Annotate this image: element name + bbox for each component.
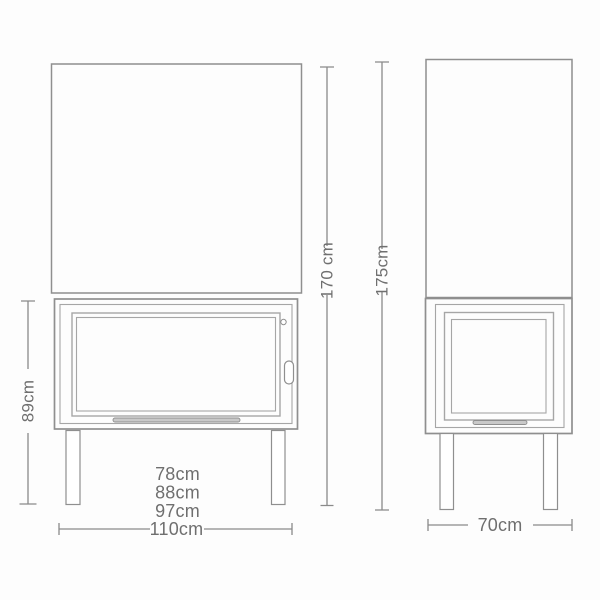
front-door-frame [72, 313, 280, 416]
front-right-leg [272, 431, 286, 505]
width-variant-2-label: 88cm [155, 483, 200, 503]
door-handle [285, 361, 294, 384]
firebox-height-label: 89cm [19, 380, 38, 422]
side-door-frame [445, 313, 554, 421]
side-air-vent [473, 421, 527, 425]
height-front-label: 170 cm [318, 242, 337, 299]
side-inner-frames [436, 305, 565, 428]
front-inner-frames [60, 305, 292, 424]
front-firebox-outer-frame [55, 299, 298, 429]
front-air-vent [113, 418, 240, 422]
side-glass-pane [452, 320, 547, 414]
front-flue-body [52, 64, 302, 293]
width-variant-1-label: 78cm [155, 464, 200, 484]
side-flue-body [426, 60, 572, 298]
diagram-canvas: 78cm 88cm 97cm 110cm 70cm 89cm 170 cm 17… [0, 0, 600, 600]
height-total-label: 175cm [373, 244, 392, 296]
side-view [426, 60, 573, 510]
fireplace-dimension-drawing: 78cm 88cm 97cm 110cm 70cm 89cm 170 cm 17… [0, 0, 600, 600]
width-variant-3-label: 97cm [155, 501, 200, 521]
front-glass-pane [77, 318, 276, 412]
side-front-leg [440, 434, 454, 510]
side-rear-leg [544, 434, 558, 510]
front-firebox-mid-frame [60, 305, 292, 424]
overall-width-label: 110cm [150, 519, 204, 539]
depth-label: 70cm [478, 515, 523, 535]
side-firebox-mid-frame [436, 305, 565, 428]
drawing-outlines [52, 60, 573, 510]
front-left-leg [66, 431, 80, 505]
front-view [52, 64, 302, 505]
hinge-pin-icon [281, 319, 286, 324]
